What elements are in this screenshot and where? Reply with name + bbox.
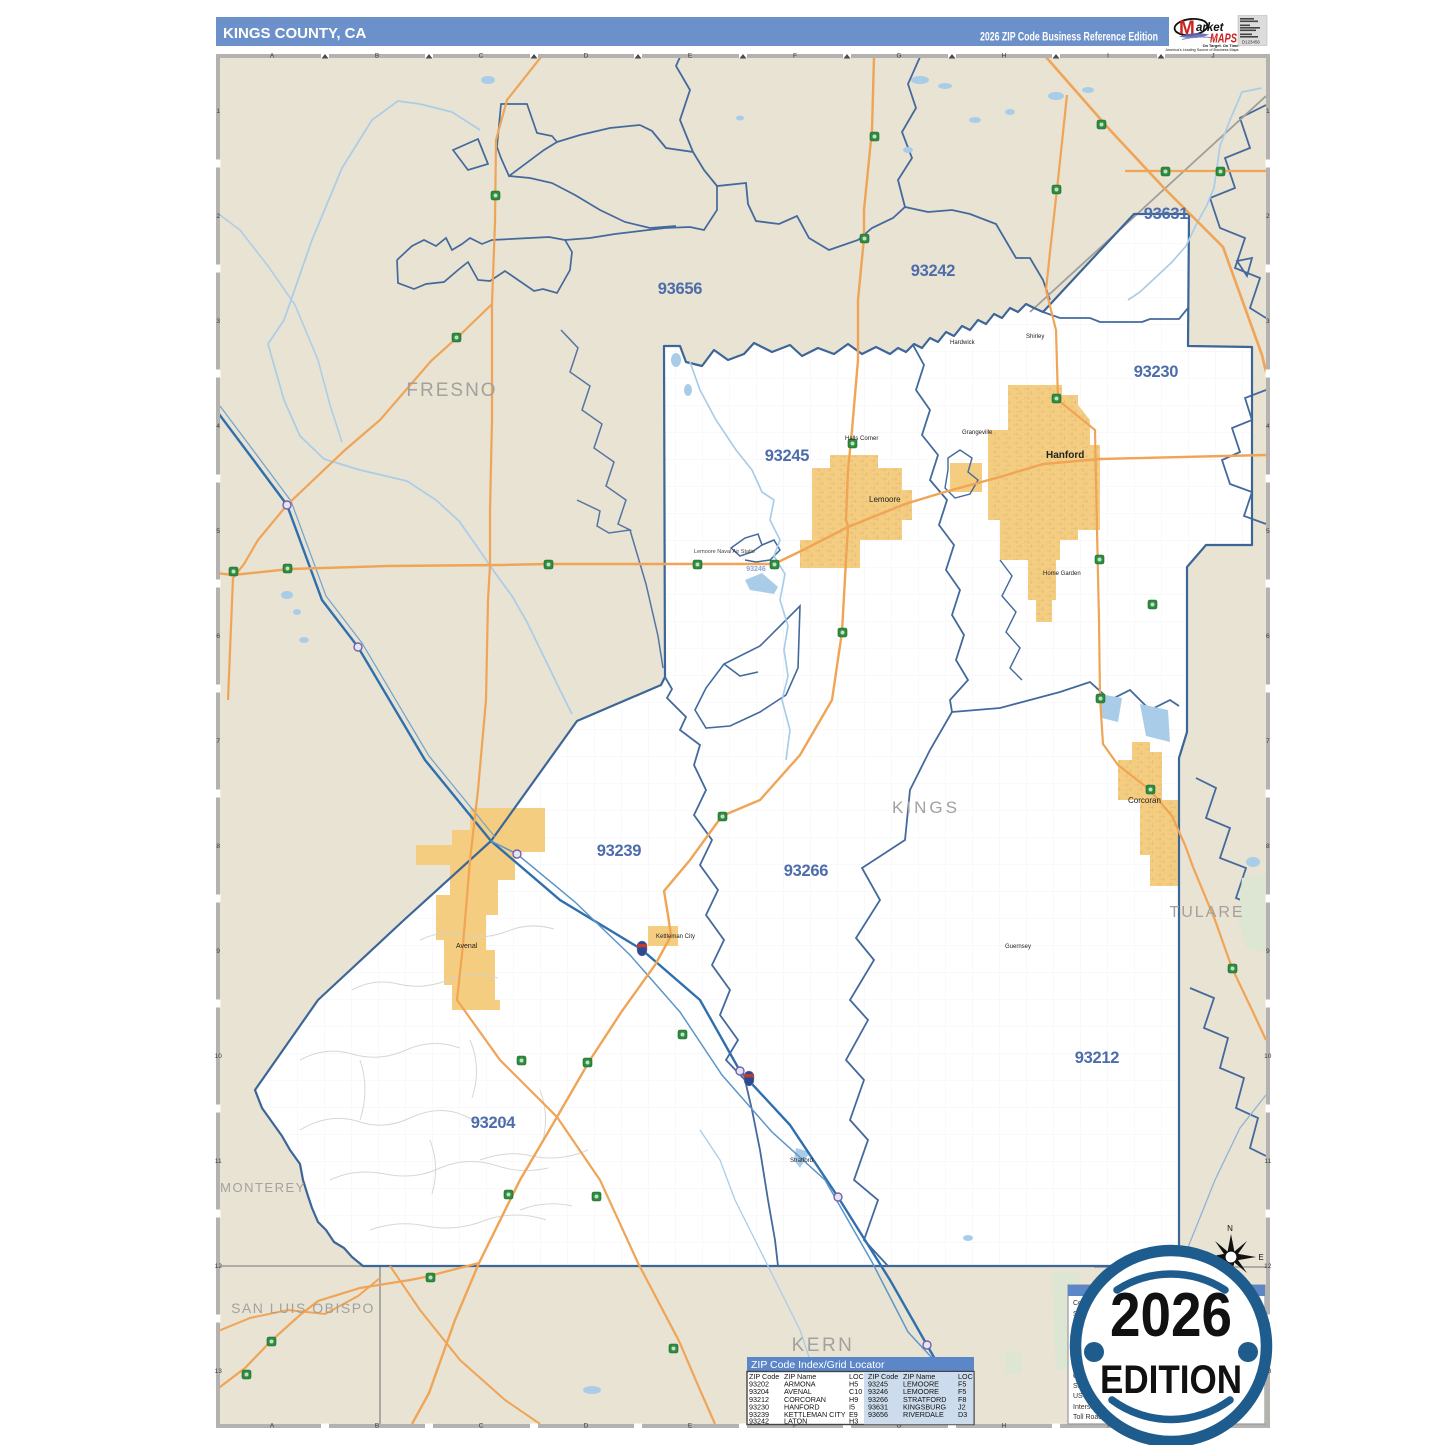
svg-text:C: C: [479, 1423, 484, 1430]
svg-text:10: 10: [1264, 1053, 1272, 1060]
svg-text:2026 ZIP Code Business Referen: 2026 ZIP Code Business Reference Edition: [980, 32, 1158, 44]
svg-text:D3: D3: [958, 1410, 967, 1419]
svg-text:E: E: [688, 53, 693, 60]
svg-text:H: H: [1002, 1423, 1007, 1430]
svg-text:2: 2: [1266, 213, 1270, 220]
svg-text:J: J: [1211, 53, 1214, 60]
svg-text:10: 10: [215, 1053, 223, 1060]
svg-text:A: A: [270, 1423, 275, 1430]
svg-text:3: 3: [1266, 318, 1270, 325]
svg-text:Corcoran: Corcoran: [1128, 796, 1161, 805]
svg-text:ZIP Code Index/Grid Locator: ZIP Code Index/Grid Locator: [751, 1359, 885, 1371]
svg-text:93239: 93239: [597, 842, 642, 860]
svg-text:Grangeville: Grangeville: [962, 430, 993, 436]
svg-text:I: I: [1107, 53, 1109, 60]
svg-text:C: C: [479, 53, 484, 60]
svg-text:13: 13: [215, 1368, 223, 1375]
svg-text:2: 2: [216, 213, 220, 220]
svg-text:4: 4: [1266, 423, 1270, 430]
svg-text:11: 11: [1264, 1158, 1271, 1165]
svg-text:E: E: [688, 1423, 693, 1430]
svg-text:E: E: [1258, 1253, 1263, 1262]
svg-text:D: D: [584, 1423, 589, 1430]
svg-text:KERN: KERN: [792, 1335, 855, 1356]
svg-text:93266: 93266: [784, 862, 829, 880]
svg-text:7: 7: [1266, 738, 1270, 745]
svg-text:America's Leading Source of B: America's Leading Source of Business Map…: [1165, 48, 1238, 52]
svg-text:SAN LUIS OBISPO: SAN LUIS OBISPO: [231, 1300, 375, 1316]
svg-text:5: 5: [1266, 528, 1270, 535]
svg-text:93204: 93204: [471, 1114, 517, 1132]
svg-text:9: 9: [1266, 948, 1270, 955]
svg-text:93212: 93212: [1075, 1049, 1120, 1067]
svg-text:B: B: [375, 1423, 379, 1430]
svg-text:93656: 93656: [868, 1410, 888, 1419]
svg-text:3: 3: [216, 318, 220, 325]
svg-text:Avenal: Avenal: [456, 943, 478, 950]
svg-text:8: 8: [1266, 843, 1270, 850]
svg-text:6: 6: [1266, 633, 1270, 640]
svg-text:F: F: [793, 53, 797, 60]
svg-text:FRESNO: FRESNO: [406, 380, 497, 401]
svg-text:Hardwick: Hardwick: [950, 340, 976, 346]
svg-text:12: 12: [1264, 1263, 1272, 1270]
svg-text:7: 7: [216, 738, 220, 745]
svg-text:12: 12: [215, 1263, 223, 1270]
svg-text:Guernsey: Guernsey: [1005, 944, 1031, 950]
svg-text:MONTEREY: MONTEREY: [220, 1180, 306, 1195]
svg-text:Hanford: Hanford: [1046, 450, 1084, 461]
svg-text:H3: H3: [849, 1417, 858, 1426]
svg-text:LATON: LATON: [784, 1417, 807, 1426]
svg-text:93245: 93245: [765, 447, 810, 465]
svg-text:KINGS: KINGS: [892, 798, 960, 817]
svg-text:93242: 93242: [911, 262, 956, 280]
svg-text:93242: 93242: [749, 1417, 769, 1426]
svg-text:2026: 2026: [1110, 1281, 1232, 1350]
svg-text:93246: 93246: [746, 566, 766, 573]
svg-text:Lemoore Naval Air Statio: Lemoore Naval Air Statio: [694, 549, 755, 555]
svg-text:93230: 93230: [1134, 363, 1179, 381]
svg-text:9: 9: [216, 948, 220, 955]
svg-text:Home Garden: Home Garden: [1043, 571, 1081, 577]
svg-text:5: 5: [216, 528, 220, 535]
svg-text:N: N: [1227, 1224, 1233, 1233]
svg-text:Lemoore: Lemoore: [869, 495, 901, 504]
svg-text:1: 1: [216, 108, 220, 115]
svg-text:Stratford: Stratford: [790, 1158, 813, 1164]
svg-text:TULARE: TULARE: [1169, 904, 1244, 921]
svg-text:1: 1: [1266, 108, 1270, 115]
svg-text:D: D: [584, 53, 589, 60]
svg-text:4: 4: [216, 423, 220, 430]
svg-text:Kettleman City: Kettleman City: [656, 934, 695, 940]
svg-text:B: B: [375, 53, 379, 60]
svg-text:H: H: [1002, 53, 1007, 60]
svg-text:Shirley: Shirley: [1026, 334, 1044, 340]
svg-text:8: 8: [216, 843, 220, 850]
svg-text:KINGS COUNTY, CA: KINGS COUNTY, CA: [223, 25, 367, 42]
svg-text:A: A: [270, 53, 275, 60]
svg-text:6: 6: [216, 633, 220, 640]
svg-text:93631: 93631: [1144, 205, 1189, 223]
svg-text:11: 11: [215, 1158, 222, 1165]
svg-text:93656: 93656: [658, 280, 703, 298]
svg-text:Halls Corner: Halls Corner: [845, 436, 878, 442]
svg-text:G: G: [896, 53, 901, 60]
svg-text:EDITION: EDITION: [1100, 1358, 1242, 1402]
svg-text:D123456: D123456: [1242, 40, 1260, 45]
svg-text:RIVERDALE: RIVERDALE: [903, 1410, 944, 1419]
